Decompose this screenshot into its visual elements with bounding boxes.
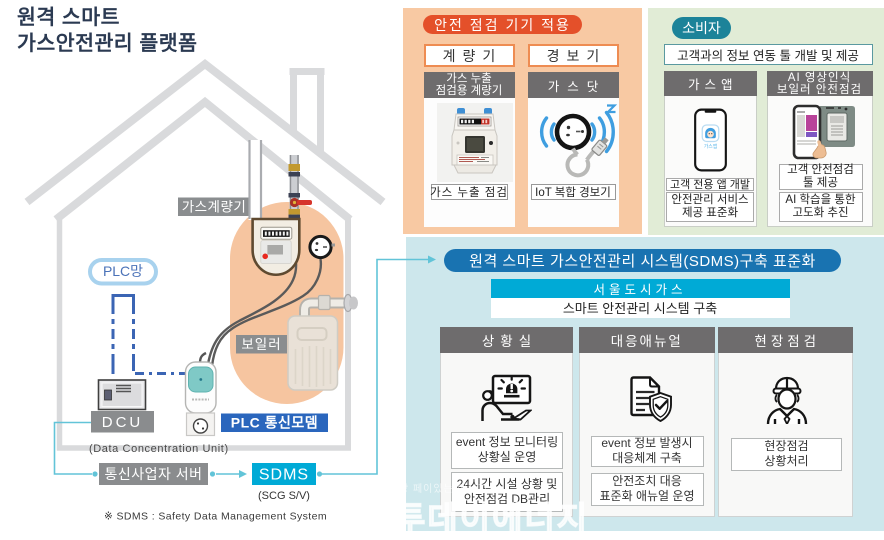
svg-text:보일러: 보일러 xyxy=(241,337,281,352)
svg-text:(Data Concentration Unit): (Data Concentration Unit) xyxy=(89,443,229,455)
svg-text:※ SDMS : Safety Data Manageme: ※ SDMS : Safety Data Management System xyxy=(104,511,327,523)
svg-text:가스계량기: 가스계량기 xyxy=(182,200,247,215)
svg-text:통신사업자 서버: 통신사업자 서버 xyxy=(104,466,202,482)
svg-text:가스앱: 가스앱 xyxy=(703,143,716,150)
svg-text:SDMS: SDMS xyxy=(259,467,309,484)
svg-text:DCU: DCU xyxy=(102,414,144,431)
svg-text:PLC망: PLC망 xyxy=(103,263,143,279)
svg-text:(SCG S/V): (SCG S/V) xyxy=(258,490,310,502)
svg-text:PLC 통신모뎀: PLC 통신모뎀 xyxy=(231,415,318,431)
